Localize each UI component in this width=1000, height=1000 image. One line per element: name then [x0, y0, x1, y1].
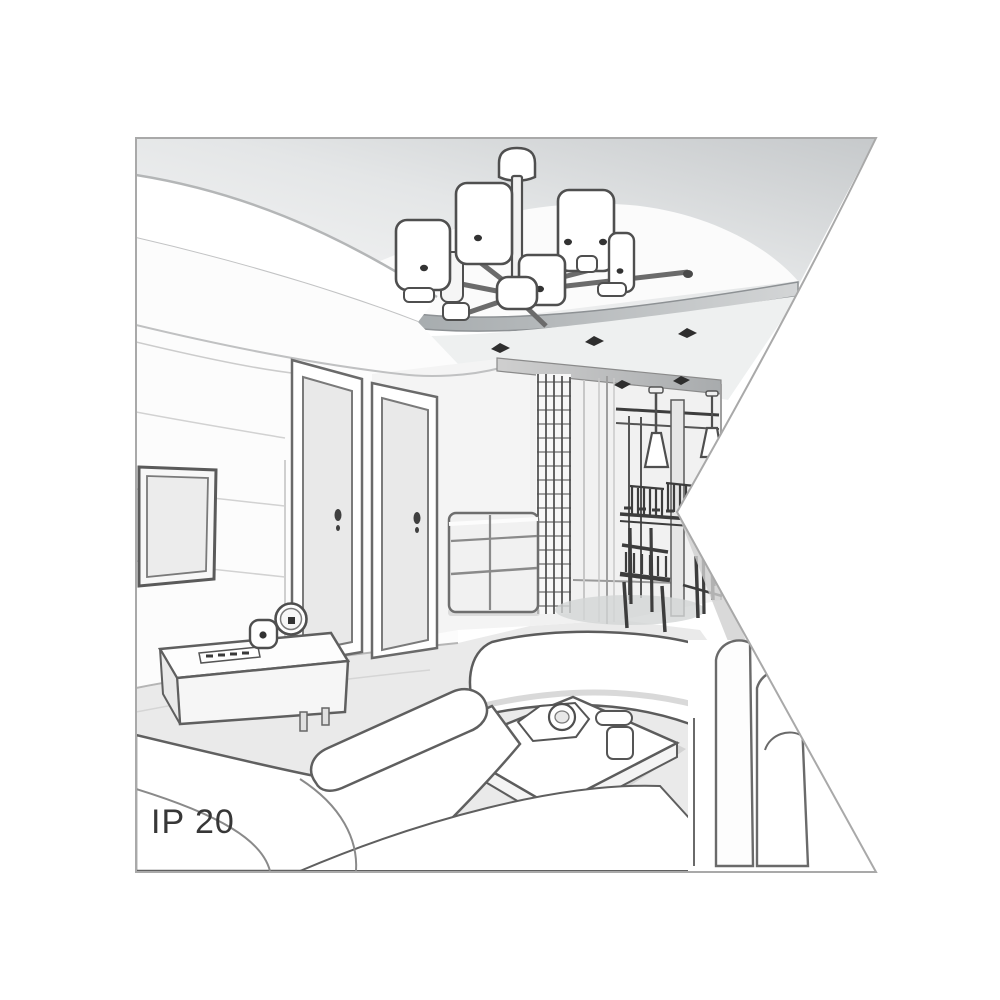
chandelier-hub [497, 277, 537, 309]
sofa-armrest [716, 640, 753, 866]
room-line-art [0, 0, 1000, 1000]
door-left-handle [335, 509, 342, 521]
speaker [250, 620, 277, 648]
alarm-clock [276, 604, 307, 635]
console-leg [300, 712, 307, 731]
product-image: IP 20 [0, 0, 1000, 1000]
door-right [372, 383, 437, 658]
sofa-armrest [757, 669, 808, 866]
ip-rating-label: IP 20 [151, 803, 235, 842]
cup [607, 727, 633, 759]
door-right-handle [414, 512, 421, 524]
shelving-rack [536, 374, 571, 614]
console-leg [322, 708, 329, 725]
tv [139, 467, 216, 586]
tv-screen [147, 476, 208, 577]
dish [596, 711, 632, 725]
chest-of-drawers [448, 513, 540, 616]
